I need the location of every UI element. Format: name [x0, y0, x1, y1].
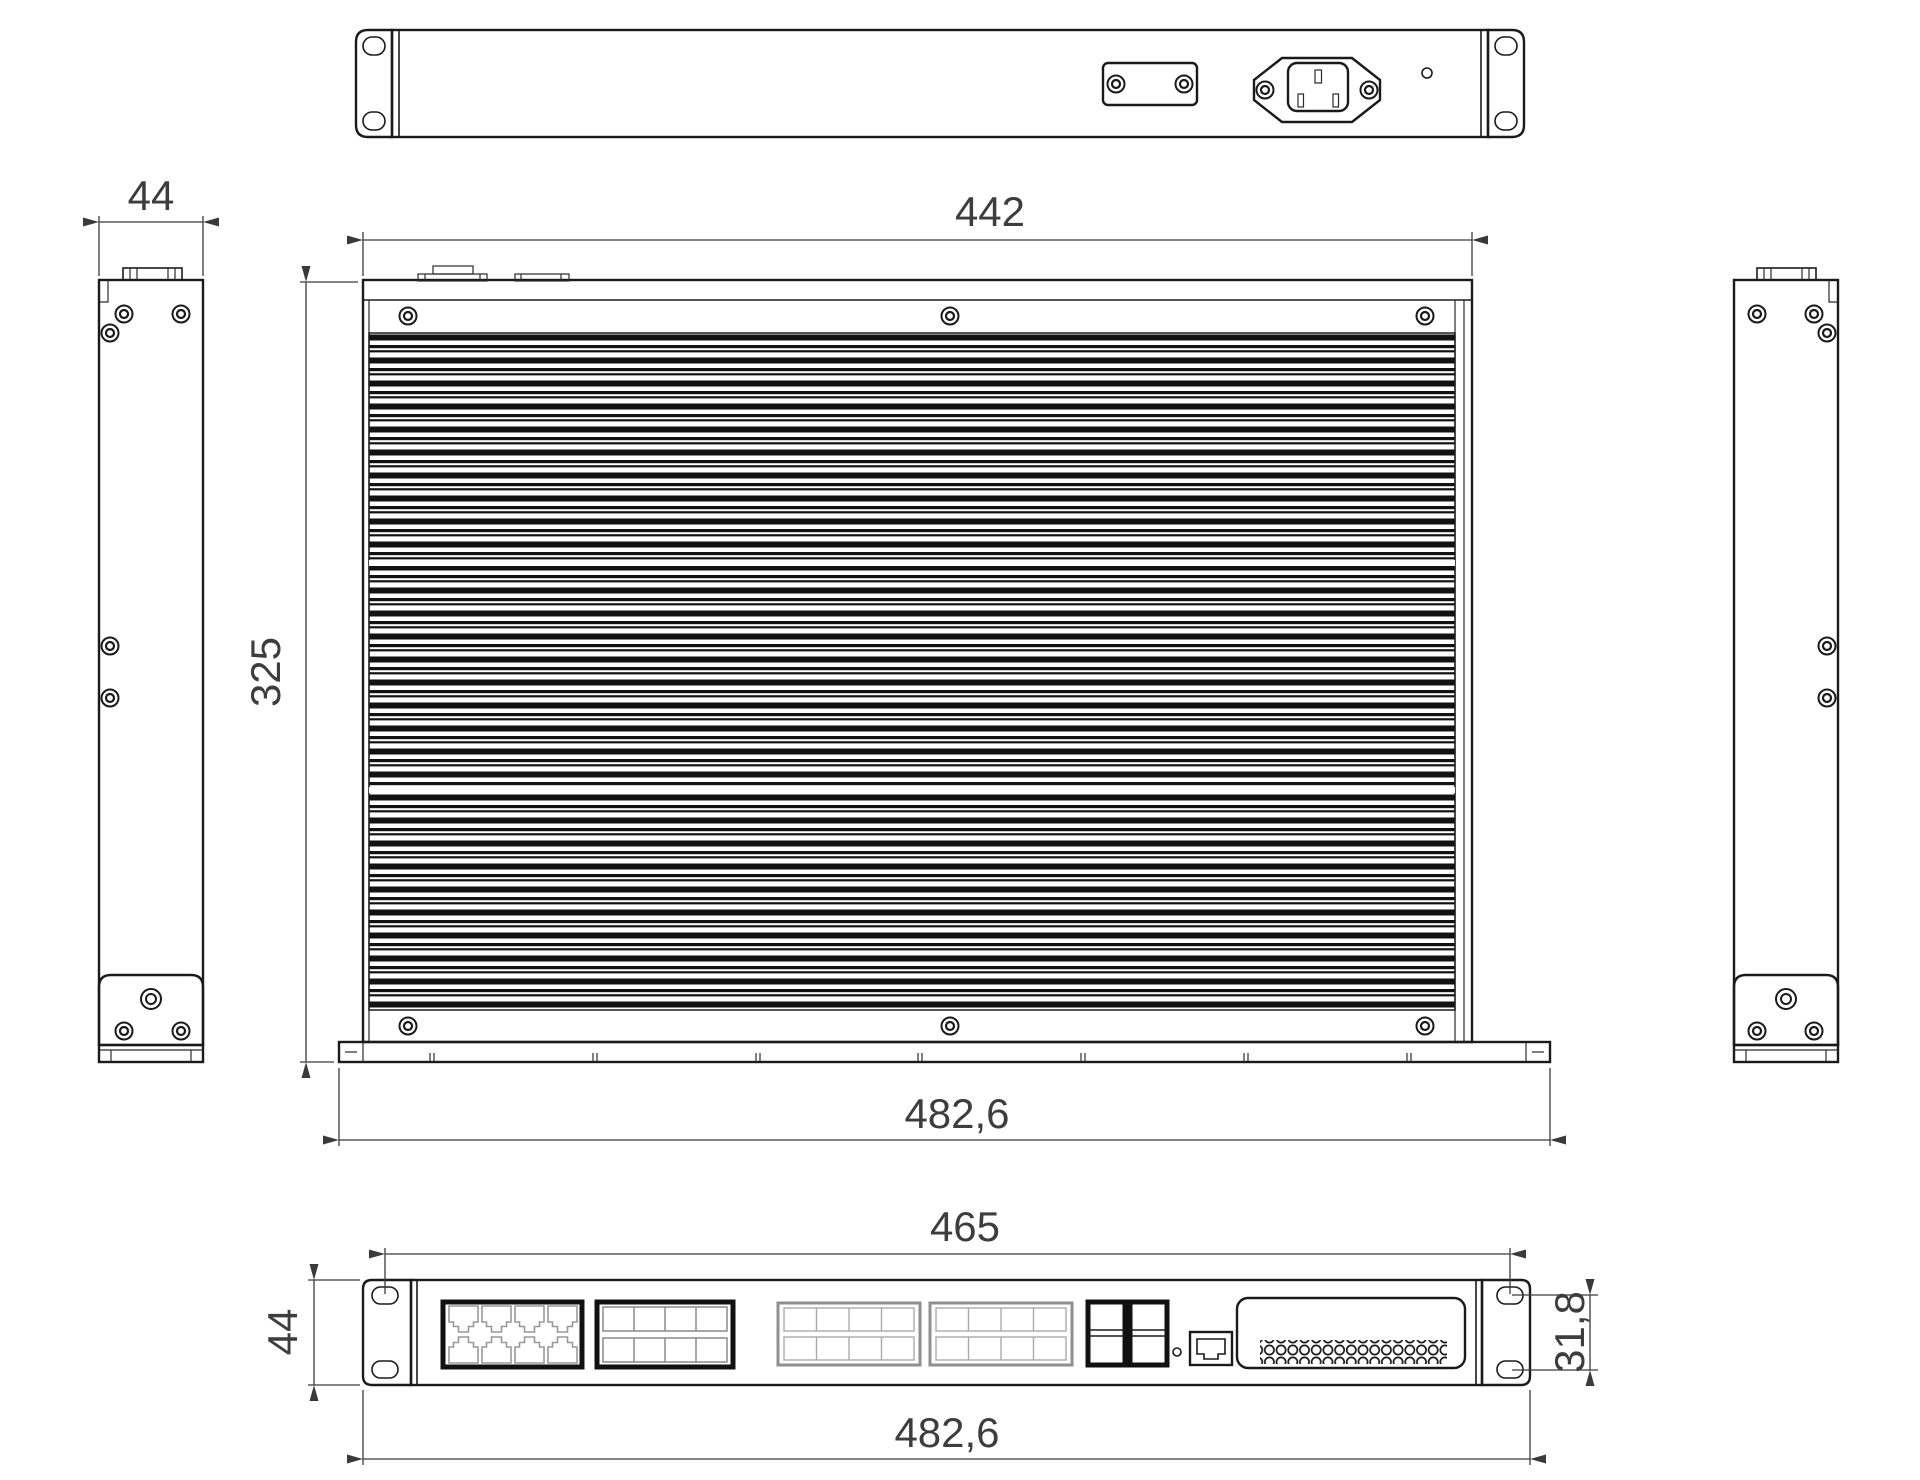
dim-front-height: 44 [259, 1280, 360, 1385]
dim-side-width: 44 [99, 172, 203, 276]
top-view: 442 325 482,6 [242, 188, 1550, 1146]
screw-icon [116, 306, 133, 323]
rear-ear-slot [363, 112, 385, 130]
right-side-top-tab [1757, 268, 1816, 280]
rear-ear-slot [363, 37, 385, 55]
screw-icon [1806, 306, 1823, 323]
rj45-port [449, 1306, 478, 1332]
right-side-view [1734, 268, 1838, 1062]
rj45-block-1 [443, 1302, 582, 1367]
screw-icon [141, 989, 161, 1009]
screw-icon [942, 1018, 959, 1035]
rear-ear-slot [1495, 37, 1517, 55]
dim-label-overall-width-top: 482,6 [904, 1090, 1009, 1137]
screw-icon [400, 1018, 417, 1035]
dim-label-body-width: 442 [955, 188, 1025, 235]
screw-icon [102, 638, 119, 655]
rear-connector-tabs [418, 266, 569, 281]
front-view: 465 44 31,8 482,6 [259, 1203, 1598, 1465]
rj45-port [548, 1337, 577, 1363]
pilot-hole [1422, 68, 1432, 78]
line-pin [1298, 94, 1304, 107]
dim-overall-width-front: 482,6 [363, 1390, 1530, 1465]
sfp-cage-pair-2 [1130, 1302, 1167, 1365]
blank-cover-plate [1103, 63, 1197, 105]
fin-break [369, 560, 1455, 566]
earth-pin [1315, 70, 1322, 83]
port-block-3 [778, 1303, 920, 1365]
rj45-port [515, 1337, 544, 1363]
port-block-4 [930, 1303, 1072, 1365]
dim-label-side-width: 44 [128, 172, 175, 219]
screw-icon [173, 306, 190, 323]
screw-icon [1819, 638, 1836, 655]
dim-overall-width-top: 482,6 [339, 1068, 1550, 1146]
status-led [1173, 1348, 1181, 1356]
screw-icon [1257, 82, 1274, 99]
port-block-2 [597, 1302, 733, 1367]
left-side-view: 44 [99, 172, 203, 1062]
corner-notch [99, 280, 108, 302]
heatsink-fins [369, 333, 1455, 1010]
dimension-drawing: 44 [0, 0, 1920, 1480]
left-side-top-tab [123, 268, 182, 280]
rj45-port [482, 1337, 511, 1363]
rj45-port [548, 1306, 577, 1332]
flange-feature-ticks [430, 1053, 1411, 1062]
dim-label-mount-hole-spacing: 465 [930, 1203, 1000, 1250]
rj45-port [515, 1306, 544, 1332]
dim-body-width: 442 [363, 188, 1472, 276]
screw-icon [1417, 1018, 1434, 1035]
rear-right-ear [1488, 30, 1524, 137]
rear-ear-slot [1495, 112, 1517, 130]
screw-icon [1749, 306, 1766, 323]
left-side-outline [99, 280, 203, 1045]
screw-icon [102, 690, 119, 707]
neutral-pin [1333, 94, 1339, 107]
front-flange-top [339, 1042, 1550, 1062]
right-bottom-lip [1734, 1045, 1838, 1062]
dim-label-overall-width-front: 482,6 [894, 1409, 999, 1456]
console-rj45-opening [1197, 1339, 1225, 1359]
front-left-ear [363, 1280, 411, 1385]
vent-grille [1237, 1298, 1465, 1368]
screw-icon [400, 308, 417, 325]
vent-holes [1260, 1340, 1447, 1364]
screw-icon [102, 325, 119, 342]
drawing-page: 44 [0, 0, 1920, 1480]
sfp-cage-pair-1 [1088, 1302, 1125, 1365]
left-bottom-lip [99, 1045, 203, 1062]
screw-icon [1108, 76, 1125, 93]
dim-ear-slot-spacing: 31,8 [1512, 1291, 1598, 1373]
dim-label-ear-slot-spacing: 31,8 [1546, 1291, 1593, 1373]
dim-body-depth: 325 [242, 282, 358, 1062]
screw-icon [1776, 989, 1796, 1009]
screw-icon [173, 1023, 190, 1040]
fin-break [369, 787, 1455, 793]
console-port [1190, 1332, 1232, 1365]
rear-view [356, 30, 1524, 137]
screw-icon [1749, 1023, 1766, 1040]
screw-icon [116, 1023, 133, 1040]
dim-label-front-height: 44 [259, 1309, 306, 1356]
screw-icon [1417, 308, 1434, 325]
right-side-outline [1734, 280, 1838, 1045]
power-inlet-c14 [1254, 58, 1380, 122]
screw-icon [1806, 1023, 1823, 1040]
rj45-port [482, 1306, 511, 1332]
screw-icon [1176, 76, 1193, 93]
rear-left-ear [356, 30, 392, 137]
corner-notch [1829, 280, 1838, 302]
screw-icon [942, 308, 959, 325]
screw-icon [1361, 82, 1378, 99]
front-ear-slot [372, 1361, 398, 1378]
dim-label-body-depth: 325 [242, 637, 289, 707]
rj45-port [449, 1337, 478, 1363]
screw-icon [1819, 325, 1836, 342]
screw-icon [1819, 690, 1836, 707]
